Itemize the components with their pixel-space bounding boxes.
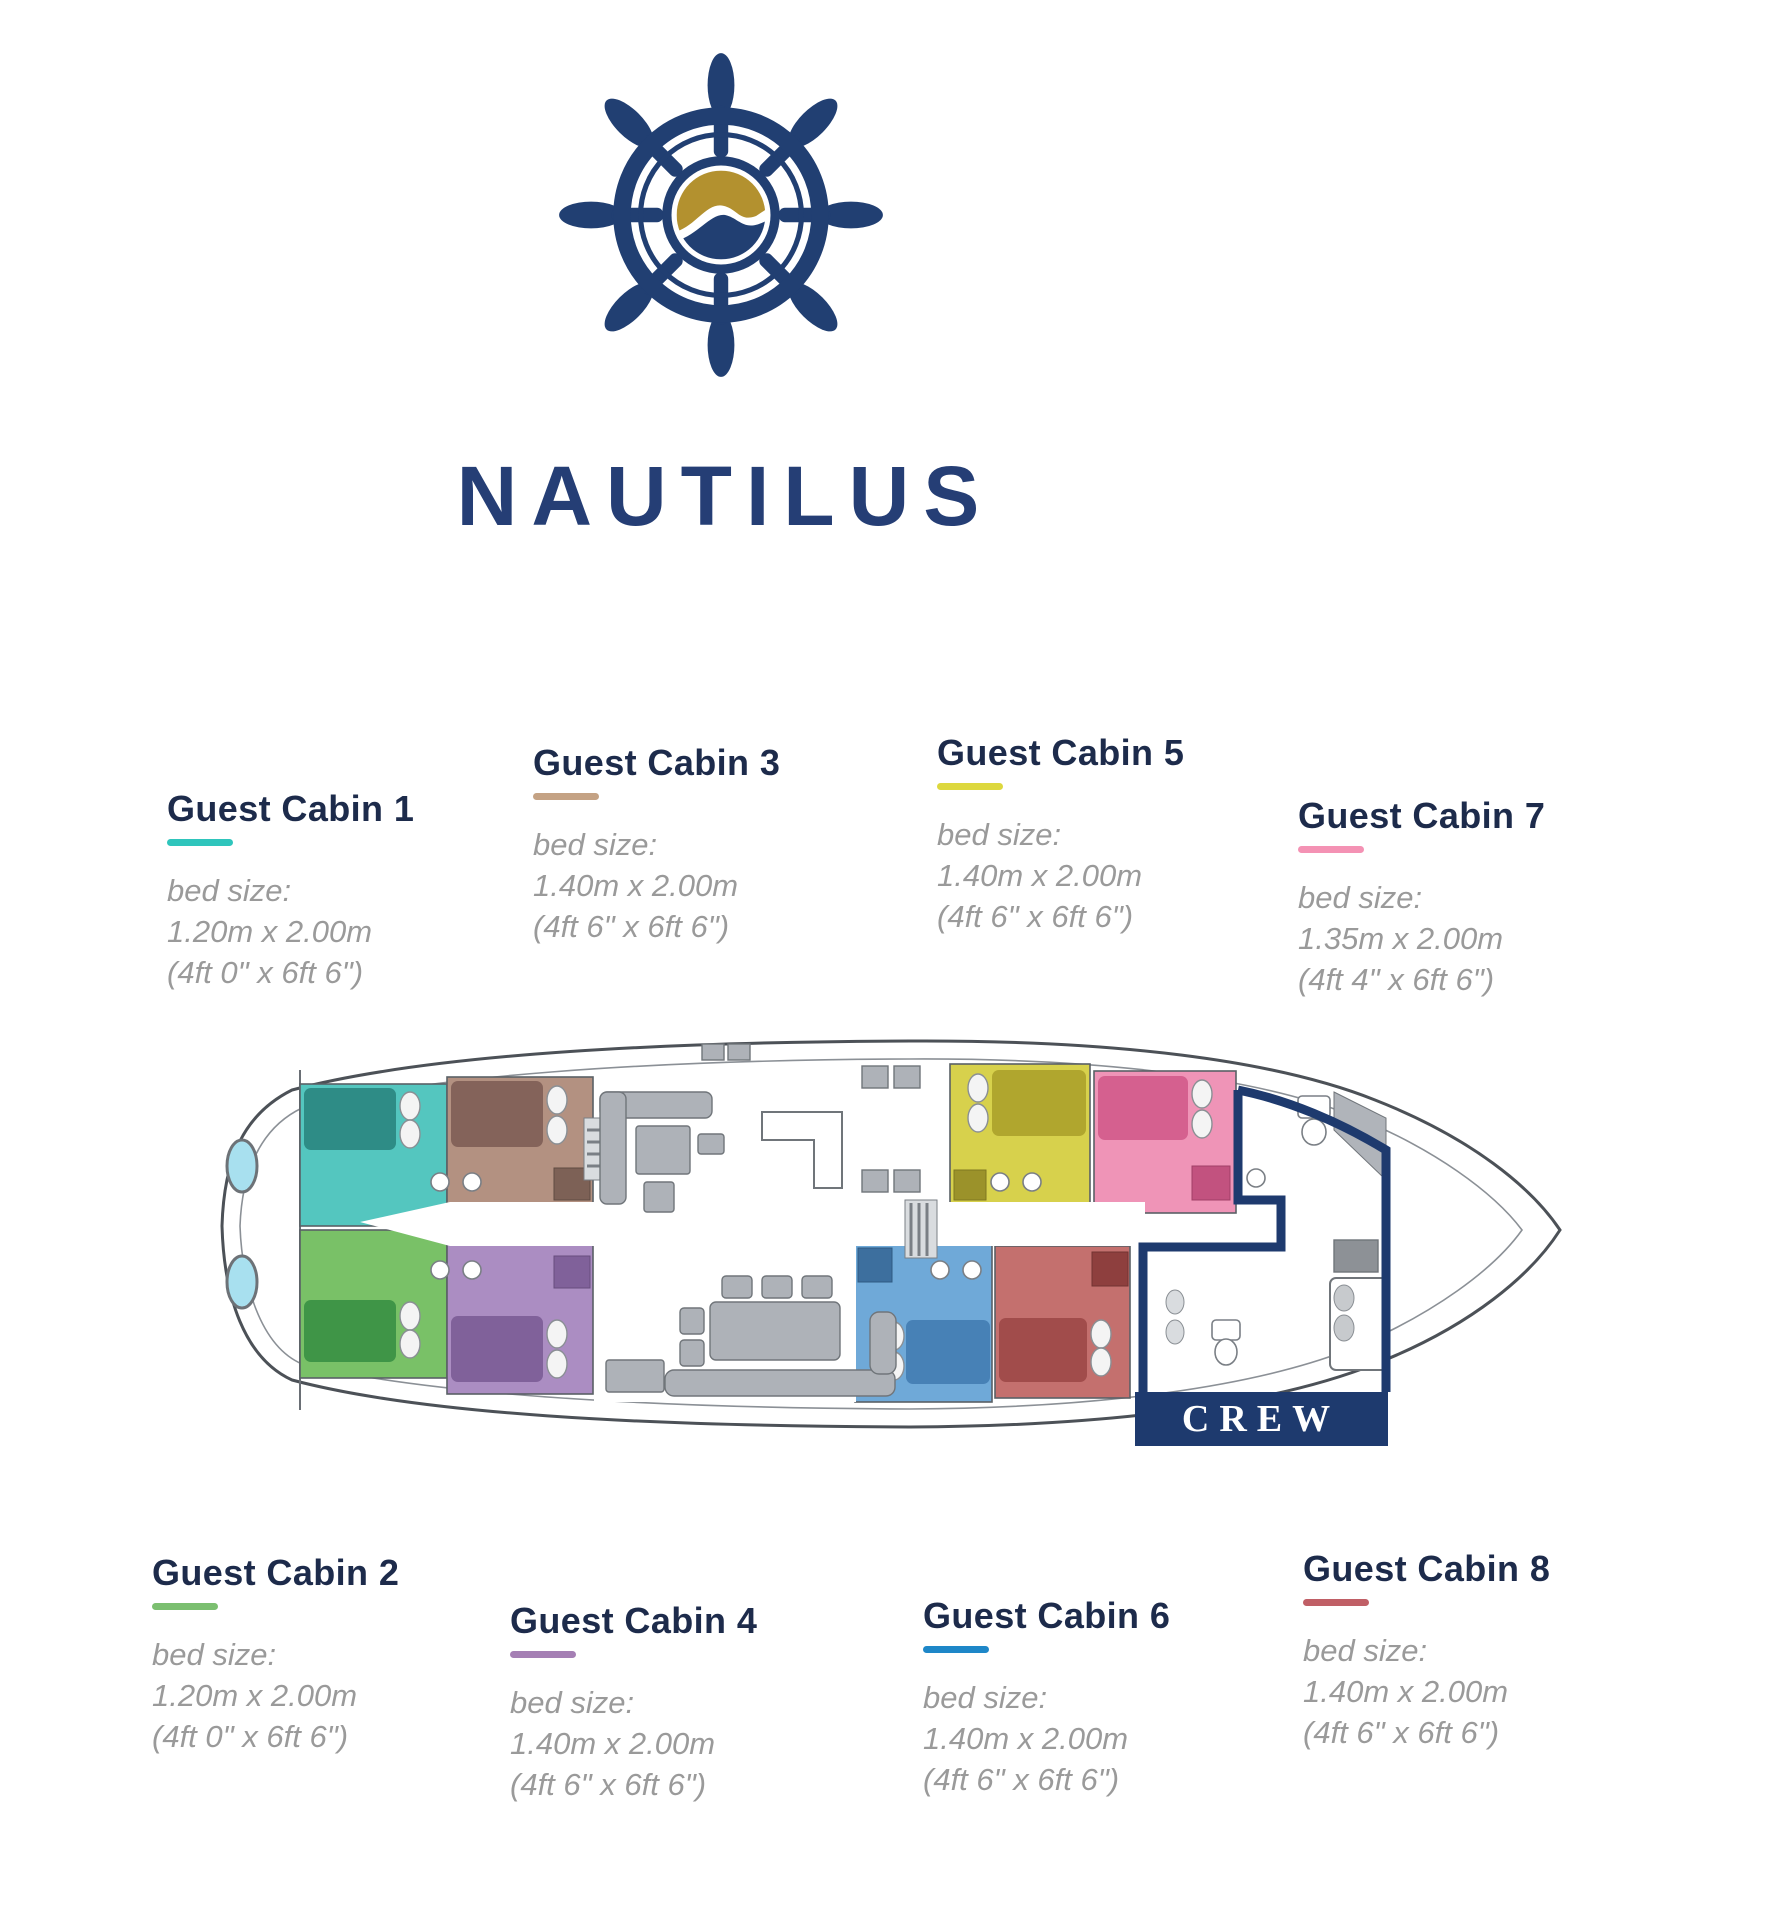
cabin-7-underline: [1298, 846, 1364, 853]
cabin-7-bed-size-label: bed size:: [1298, 877, 1545, 918]
cabin-5-underline: [937, 783, 1003, 790]
cabin-3-label: Guest Cabin 3 bed size: 1.40m x 2.00m (4…: [533, 742, 780, 947]
cabin-6-title: Guest Cabin 6: [923, 1595, 1170, 1637]
cabin-1-bed-size-label: bed size:: [167, 870, 414, 911]
cabin-5-bed-size-imperial: (4ft 6" x 6ft 6"): [937, 896, 1184, 937]
cabin-6-label: Guest Cabin 6 bed size: 1.40m x 2.00m (4…: [923, 1595, 1170, 1800]
cabin-1-bed-size-imperial: (4ft 0" x 6ft 6"): [167, 952, 414, 993]
deck-plan: CREW: [210, 1030, 1570, 1450]
crew-label-text: CREW: [1182, 1398, 1340, 1440]
cabin-5-bed-size-label: bed size:: [937, 814, 1184, 855]
cabin-1-title: Guest Cabin 1: [167, 788, 414, 830]
porthole-icon: [227, 1140, 257, 1192]
cabin-4-underline: [510, 1651, 576, 1658]
cabin-7-bed-size-imperial: (4ft 4" x 6ft 6"): [1298, 959, 1545, 1000]
cabin-8-label: Guest Cabin 8 bed size: 1.40m x 2.00m (4…: [1303, 1548, 1550, 1753]
cabin-6-closet: [858, 1248, 892, 1282]
cabin-8-title: Guest Cabin 8: [1303, 1548, 1550, 1590]
cabin-3-bed-size-metric: 1.40m x 2.00m: [533, 865, 780, 906]
cabin-8-bed-size-label: bed size:: [1303, 1630, 1550, 1671]
cabin-4-label: Guest Cabin 4 bed size: 1.40m x 2.00m (4…: [510, 1600, 757, 1805]
cabin-5-label: Guest Cabin 5 bed size: 1.40m x 2.00m (4…: [937, 732, 1184, 937]
cabin-2-bed-size-metric: 1.20m x 2.00m: [152, 1675, 399, 1716]
cabin-2-underline: [152, 1603, 218, 1610]
cabin-7-label: Guest Cabin 7 bed size: 1.35m x 2.00m (4…: [1298, 795, 1545, 1000]
cabin-4-bed-size-metric: 1.40m x 2.00m: [510, 1723, 757, 1764]
cabin-8-bed-size-imperial: (4ft 6" x 6ft 6"): [1303, 1712, 1550, 1753]
cabin-3-bed-size-label: bed size:: [533, 824, 780, 865]
cabin-4-bed-size-imperial: (4ft 6" x 6ft 6"): [510, 1764, 757, 1805]
cabin-2-label: Guest Cabin 2 bed size: 1.20m x 2.00m (4…: [152, 1552, 399, 1757]
cabin-3-title: Guest Cabin 3: [533, 742, 780, 784]
cabin-1-underline: [167, 839, 233, 846]
cabin-1-bed-size-metric: 1.20m x 2.00m: [167, 911, 414, 952]
cabin-5-title: Guest Cabin 5: [937, 732, 1184, 774]
cabin-6-underline: [923, 1646, 989, 1653]
cabin-2-title: Guest Cabin 2: [152, 1552, 399, 1594]
cabin-6-bed-size-label: bed size:: [923, 1677, 1170, 1718]
cabin-8-closet: [1092, 1252, 1128, 1286]
cabin-3-underline: [533, 793, 599, 800]
cabin-6-bed-size-metric: 1.40m x 2.00m: [923, 1718, 1170, 1759]
cabin-4-bed-size-label: bed size:: [510, 1682, 757, 1723]
cabin-1-label: Guest Cabin 1 bed size: 1.20m x 2.00m (4…: [167, 788, 414, 993]
ship-wheel-icon: [556, 50, 886, 380]
cabin-5-bed-size-metric: 1.40m x 2.00m: [937, 855, 1184, 896]
cabin-7-closet: [1192, 1166, 1230, 1200]
porthole-icon: [227, 1256, 257, 1308]
cabin-7-title: Guest Cabin 7: [1298, 795, 1545, 837]
cabin-2-bed-size-imperial: (4ft 0" x 6ft 6"): [152, 1716, 399, 1757]
cabin-3-bed-size-imperial: (4ft 6" x 6ft 6"): [533, 906, 780, 947]
cabin-4-closet: [554, 1256, 590, 1288]
cabin-8-bed-size-metric: 1.40m x 2.00m: [1303, 1671, 1550, 1712]
cabin-5-closet: [954, 1170, 986, 1200]
cabin-4-title: Guest Cabin 4: [510, 1600, 757, 1642]
cabin-2-bed-size-label: bed size:: [152, 1634, 399, 1675]
cabin-6-bed-size-imperial: (4ft 6" x 6ft 6"): [923, 1759, 1170, 1800]
brand-wordmark: NAUTILUS: [340, 448, 1110, 545]
cabin-7-bed-size-metric: 1.35m x 2.00m: [1298, 918, 1545, 959]
cabin-8-underline: [1303, 1599, 1369, 1606]
corridor: [360, 1202, 1145, 1246]
